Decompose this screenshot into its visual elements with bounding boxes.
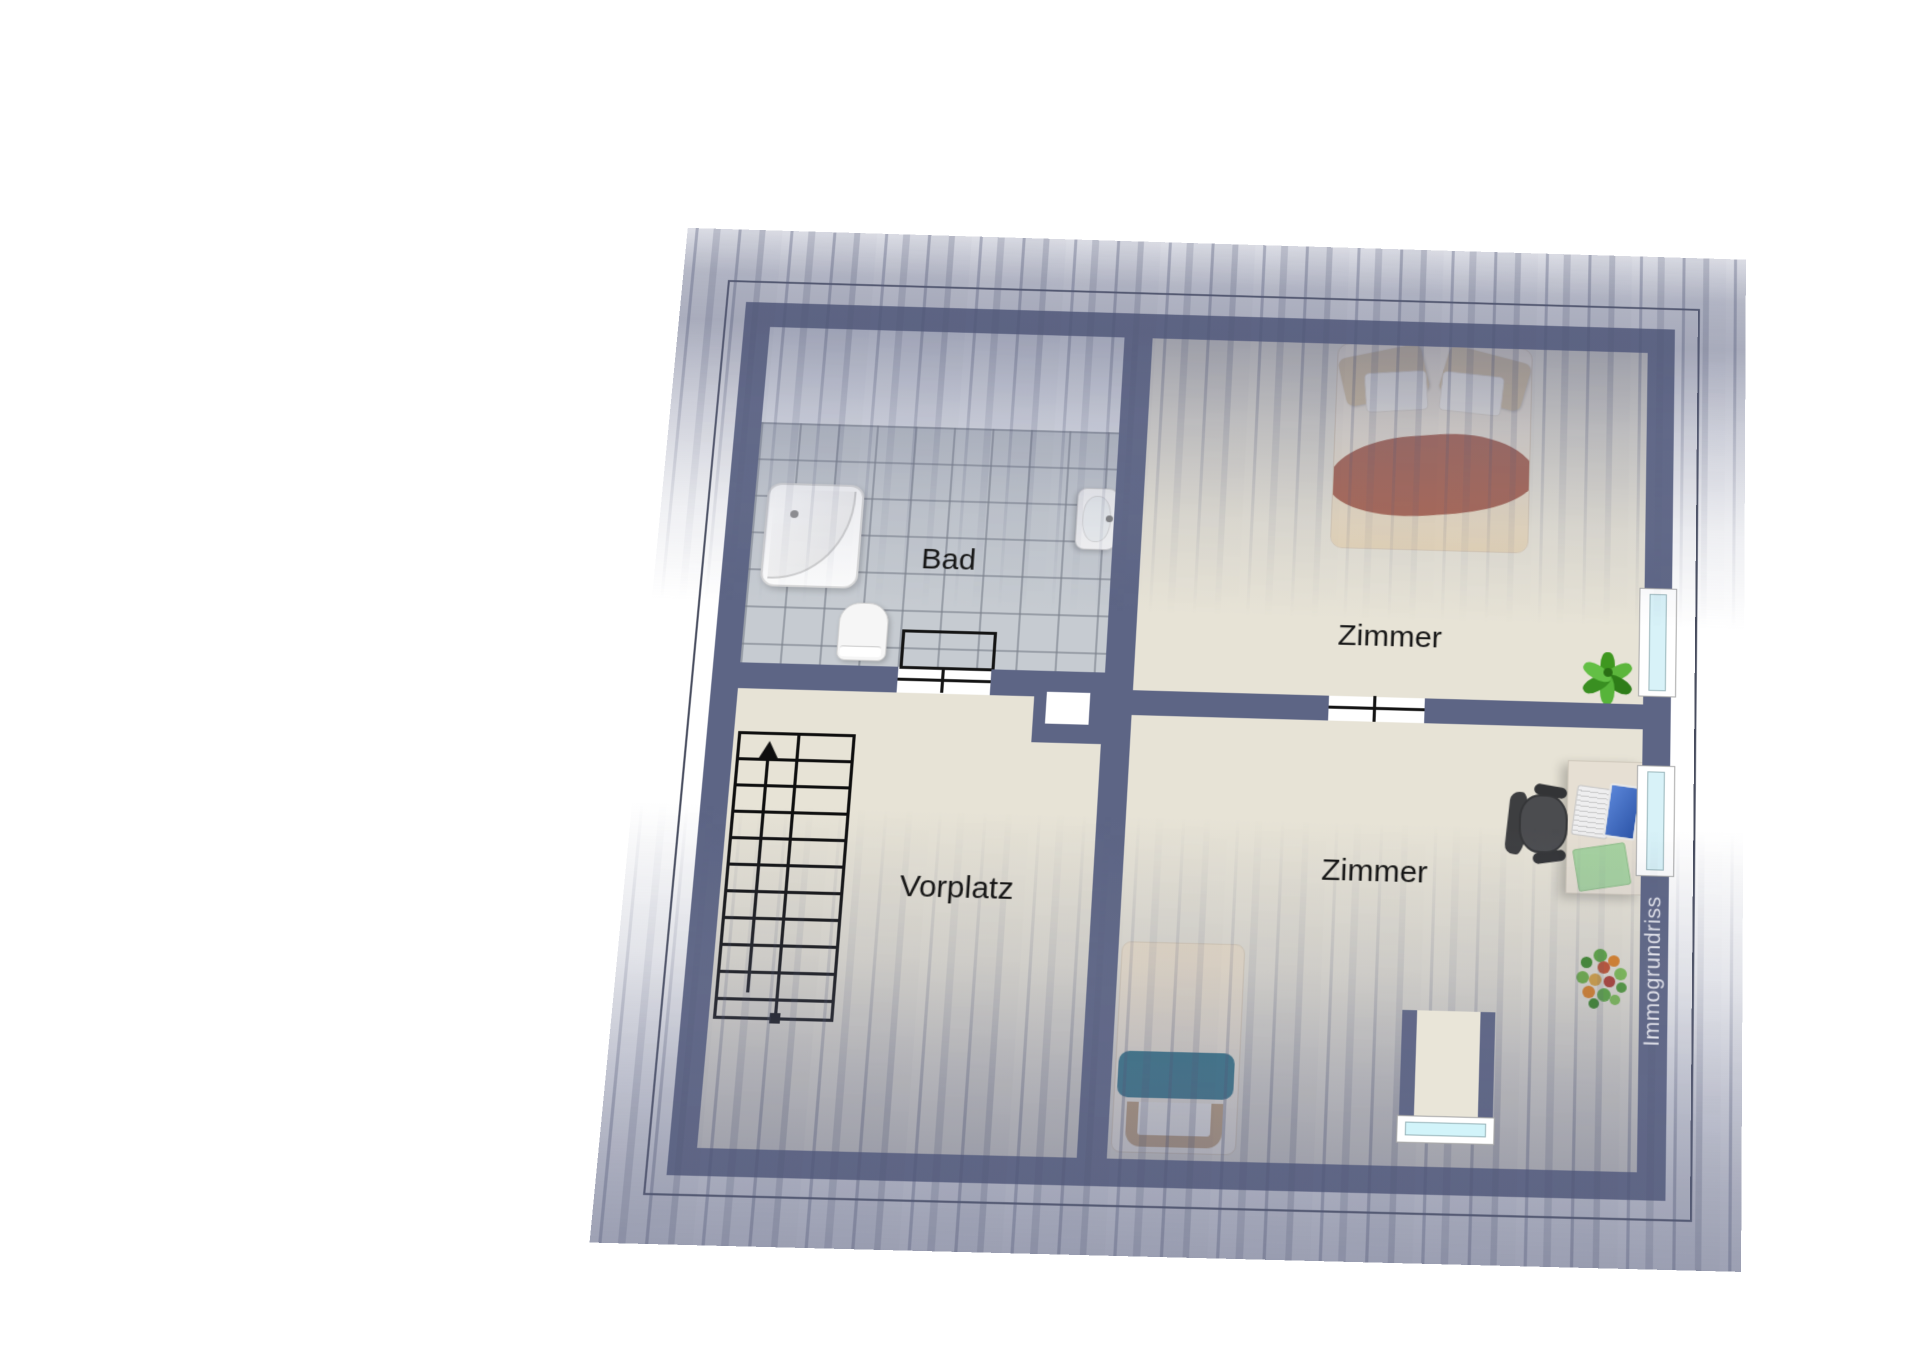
- dormer-window-glass: [1405, 1122, 1486, 1138]
- roof-slope-shading-bottom: [590, 802, 1744, 1272]
- floor-plan-page: Bad Vorplatz Zimmer Zimmer Immogrundriss: [0, 0, 1920, 1357]
- roof-slope-shading-top: [652, 228, 1746, 631]
- stairs-up-arrow-icon: [759, 741, 779, 759]
- toilet-lid: [839, 645, 881, 657]
- floor-plan: Bad Vorplatz Zimmer Zimmer Immogrundriss: [643, 280, 1700, 1222]
- label-zimmer-top: Zimmer: [1337, 619, 1442, 655]
- plant-icon: [1580, 646, 1634, 699]
- label-zimmer-bottom: Zimmer: [1321, 853, 1429, 891]
- dormer-floor: [1414, 1010, 1481, 1125]
- bad-door-leaf: [899, 629, 997, 671]
- label-vorplatz: Vorplatz: [898, 869, 1014, 907]
- wall-east-middle: [1642, 695, 1671, 768]
- watermark-immogrundriss: Immogrundriss: [1637, 868, 1669, 1076]
- toilet-icon: [836, 602, 890, 661]
- wall-bad-south-left: [738, 662, 899, 692]
- chimney-shaft: [1045, 692, 1090, 725]
- label-bad: Bad: [920, 543, 977, 578]
